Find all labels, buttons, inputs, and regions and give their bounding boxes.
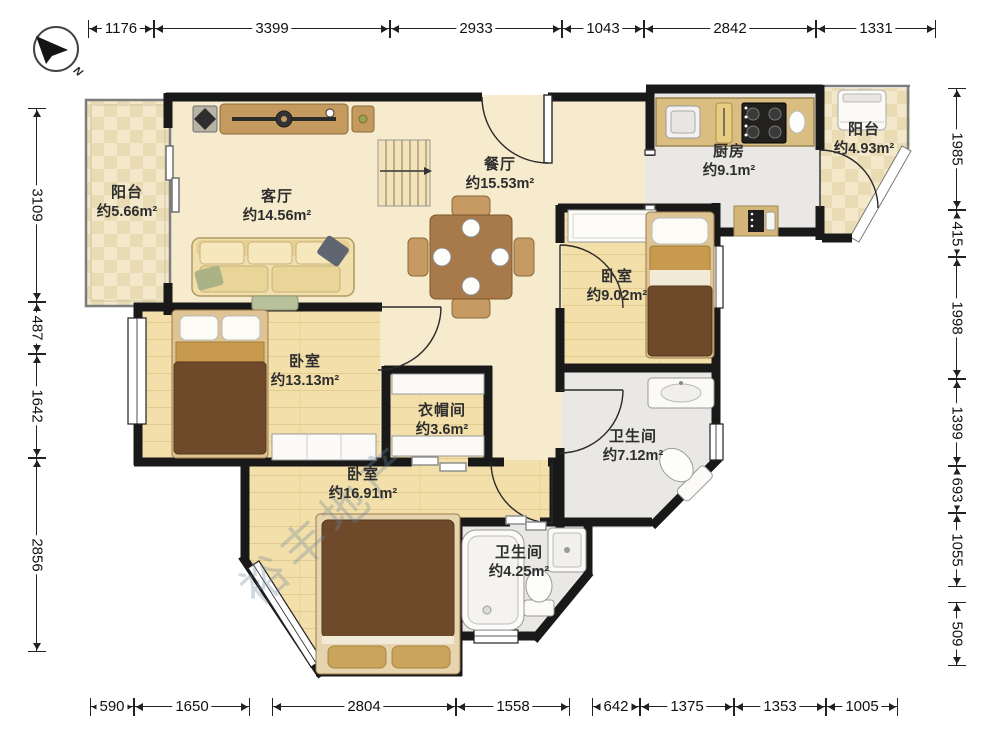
room-label-balcony-right: 阳台 约4.93m² [804,120,924,160]
dim-value: 1043 [562,20,644,38]
dim-value: 1331 [816,20,936,38]
dim-value: 2856 [28,458,46,652]
room-label-bedroom-right: 卧室 约9.02m² [557,267,677,307]
stairs [378,140,432,206]
kitchen-cabinet [734,206,778,236]
dim-value: 1353 [734,698,826,716]
compass: N [34,27,85,80]
window-bath-small [474,630,518,643]
dim-value: 590 [90,698,134,716]
dim-value: 2933 [390,20,562,38]
floor-plan-drawing: N 裕丰地产 [0,0,1000,750]
dimensions-top: 1176 3399 2933 1043 2842 1331 [88,20,936,38]
room-label-dining: 餐厅 约15.53m² [440,155,560,195]
room-label-balcony-left: 阳台 约5.66m² [67,183,187,223]
floor-plan-page: N 裕丰地产 阳台 约5.66m² 客厅 约14.56m² 餐厅 约15.53m… [0,0,1000,750]
dimensions-bottom-left: 590 1650 [90,698,250,716]
dim-value: 1375 [640,698,734,716]
dim-value: 1055 [948,513,966,587]
bay-window-bedroom-mid [128,318,146,424]
room-label-closet: 衣帽间 约3.6m² [382,401,502,441]
room-label-bedroom-mid: 卧室 约13.13m² [245,352,365,392]
dim-value: 1985 [948,88,966,210]
dim-value: 1558 [456,698,570,716]
dim-value: 3109 [28,108,46,302]
room-label-living: 客厅 约14.56m² [217,187,337,227]
dimensions-left: 3109 487 1642 2856 [28,108,46,652]
dimensions-right-isolated: 509 [948,602,966,666]
room-label-kitchen: 厨房 约9.1m² [669,142,789,182]
dim-value: 487 [28,302,46,354]
dim-value: 1399 [948,379,966,466]
room-label-bath-main: 卫生间 约7.12m² [573,427,693,467]
dresser-bedroom-mid [272,434,376,460]
dim-value: 3399 [154,20,390,38]
wardrobe-bedroom-right [568,210,656,242]
dimensions-bottom-right: 642 1375 1353 1005 [592,698,898,716]
room-label-bath-small: 卫生间 约4.25m² [459,543,579,583]
sink-bath-main [648,378,714,408]
dim-value: 2842 [644,20,816,38]
tv-console [193,104,374,134]
dim-value: 693 [948,466,966,513]
window-bath-main [710,424,723,460]
dim-value: 1642 [28,354,46,458]
dim-value: 1176 [88,20,154,38]
dim-value: 415 [948,210,966,257]
dim-value: 1650 [134,698,250,716]
dim-value: 642 [592,698,640,716]
compass-north-label: N [71,65,86,80]
dim-value: 1998 [948,257,966,379]
room-label-bedroom-bottom: 卧室 约16.91m² [303,465,423,505]
dim-value: 2804 [272,698,456,716]
dim-value: 509 [948,602,966,666]
dimensions-right: 1985 415 1998 1399 693 1055 [948,88,966,587]
dim-value: 1005 [826,698,898,716]
kitchen-counter [656,98,814,146]
dimensions-bottom-mid: 2804 1558 [272,698,570,716]
